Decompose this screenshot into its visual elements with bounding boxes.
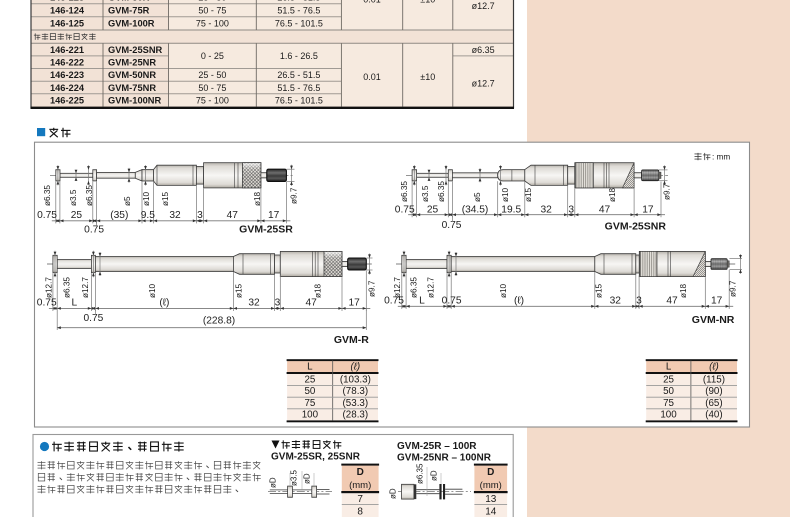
svg-text:14: 14 (485, 507, 497, 517)
svg-text:9.5: 9.5 (141, 210, 155, 221)
svg-text:ø12.7: ø12.7 (472, 1, 495, 11)
svg-text:17: 17 (349, 298, 361, 309)
svg-text:ø12.7: ø12.7 (45, 277, 54, 298)
svg-text:47: 47 (306, 298, 318, 309)
svg-text:ø6.35: ø6.35 (43, 185, 52, 206)
svg-text:ø6.35: ø6.35 (472, 45, 495, 55)
svg-text:(228.8): (228.8) (203, 315, 235, 326)
svg-text:ø5: ø5 (473, 192, 482, 202)
svg-text:13: 13 (485, 494, 497, 505)
svg-text:GVM-25R – 100R: GVM-25R – 100R (397, 441, 477, 452)
svg-text:0.75: 0.75 (83, 313, 103, 324)
svg-text:GVM-25SNR: GVM-25SNR (605, 220, 667, 232)
svg-text:146-222: 146-222 (50, 57, 84, 67)
svg-text:øD: øD (269, 477, 278, 488)
svg-text:(65): (65) (705, 398, 722, 409)
svg-text:(28.3): (28.3) (343, 409, 369, 420)
svg-text:(78.3): (78.3) (343, 386, 369, 397)
svg-text:3: 3 (275, 298, 281, 309)
svg-text:0.75: 0.75 (37, 298, 57, 309)
svg-text:D: D (487, 467, 494, 478)
svg-text:100: 100 (660, 409, 677, 420)
svg-text:25: 25 (304, 375, 315, 386)
svg-text:ø6.35: ø6.35 (400, 181, 409, 202)
svg-text:17: 17 (711, 296, 723, 307)
svg-text:25: 25 (427, 205, 439, 216)
svg-text:26.5 - 51.5: 26.5 - 51.5 (277, 0, 320, 3)
svg-text:(ℓ): (ℓ) (514, 296, 524, 307)
svg-text:51.5 - 76.5: 51.5 - 76.5 (277, 6, 320, 16)
svg-text:50: 50 (304, 386, 315, 397)
svg-text:0.75: 0.75 (384, 296, 404, 307)
svg-text:ø9.7: ø9.7 (368, 280, 377, 297)
svg-text:ø3.5: ø3.5 (421, 185, 430, 202)
svg-text:0.75: 0.75 (37, 210, 57, 221)
svg-text:(115): (115) (703, 375, 725, 386)
svg-text:25 - 50: 25 - 50 (198, 70, 226, 80)
svg-text:ø9.7: ø9.7 (290, 187, 299, 204)
svg-text:17: 17 (268, 210, 280, 221)
svg-text:51.5 - 76.5: 51.5 - 76.5 (277, 83, 320, 93)
svg-text:ø3.5: ø3.5 (69, 189, 78, 206)
svg-text:32: 32 (610, 296, 622, 307)
svg-text:146-224: 146-224 (50, 83, 85, 93)
svg-text:76.5 - 101.5: 76.5 - 101.5 (275, 95, 323, 105)
svg-text:ø10: ø10 (142, 191, 151, 206)
svg-text:øD: øD (429, 470, 438, 481)
svg-text:3: 3 (197, 210, 203, 221)
svg-text:ø12.7: ø12.7 (427, 277, 436, 298)
svg-text:(ℓ): (ℓ) (350, 362, 360, 373)
svg-text:ø10: ø10 (499, 283, 508, 298)
svg-text:GVM-25SR, 25SNR: GVM-25SR, 25SNR (271, 452, 361, 463)
svg-text:47: 47 (666, 296, 678, 307)
svg-text:: mm: : mm (712, 153, 730, 162)
svg-text:ø12.7: ø12.7 (472, 79, 495, 89)
svg-text:ø15: ø15 (235, 283, 244, 298)
svg-text:47: 47 (599, 205, 611, 216)
svg-text:GVM-75R: GVM-75R (108, 6, 150, 16)
svg-text:øD: øD (389, 488, 398, 499)
svg-text:146-225: 146-225 (50, 95, 84, 105)
svg-text:50: 50 (663, 386, 674, 397)
svg-text:D: D (357, 467, 364, 478)
svg-text:(ℓ): (ℓ) (159, 298, 169, 309)
svg-text:(40): (40) (705, 409, 722, 420)
svg-text:0.75: 0.75 (442, 220, 462, 231)
svg-text:(90): (90) (705, 386, 722, 397)
svg-text:25: 25 (71, 210, 83, 221)
svg-text:8: 8 (357, 507, 363, 517)
svg-text:32: 32 (169, 210, 181, 221)
svg-text:GVM-25NR: GVM-25NR (108, 57, 156, 67)
svg-text:ø18: ø18 (608, 187, 617, 202)
svg-text:ø15: ø15 (161, 191, 170, 206)
svg-text:ø18: ø18 (679, 283, 688, 298)
svg-text:0.01: 0.01 (363, 72, 381, 82)
svg-text:100: 100 (302, 409, 319, 420)
svg-text:L: L (666, 362, 672, 373)
svg-text:(mm): (mm) (349, 480, 371, 491)
svg-text:146-125: 146-125 (50, 19, 84, 29)
svg-text:(34.5): (34.5) (462, 205, 489, 216)
svg-text:47: 47 (227, 210, 239, 221)
svg-text:GVM-50R: GVM-50R (108, 0, 150, 3)
svg-text:ø12.7: ø12.7 (81, 277, 90, 298)
svg-text:3: 3 (636, 296, 642, 307)
svg-text:ø5: ø5 (123, 196, 132, 206)
svg-text:GVM-25SNR: GVM-25SNR (108, 45, 163, 55)
svg-text:L: L (307, 362, 313, 373)
svg-text:19.5: 19.5 (501, 205, 521, 216)
svg-text:L: L (419, 296, 425, 307)
svg-text:32: 32 (541, 205, 553, 216)
svg-text:GVM-NR: GVM-NR (692, 314, 735, 326)
svg-text:146-221: 146-221 (50, 45, 84, 55)
svg-text:±10: ±10 (420, 72, 435, 82)
svg-text:75 - 100: 75 - 100 (196, 19, 229, 29)
svg-text:17: 17 (642, 205, 654, 216)
svg-text:(35): (35) (110, 210, 128, 221)
svg-text:(mm): (mm) (480, 480, 502, 491)
svg-text:ø15: ø15 (595, 283, 604, 298)
svg-text:1.6 - 26.5: 1.6 - 26.5 (280, 51, 318, 61)
svg-text:GVM-100NR: GVM-100NR (108, 95, 161, 105)
svg-text:ø9.7: ø9.7 (729, 280, 738, 297)
svg-text:(ℓ): (ℓ) (709, 362, 719, 373)
svg-text:GVM-50NR: GVM-50NR (108, 70, 156, 80)
svg-text:GVM-R: GVM-R (334, 334, 369, 346)
svg-text:ø9.7: ø9.7 (663, 183, 672, 200)
svg-text:ø6.35: ø6.35 (415, 463, 424, 484)
svg-text:ø18: ø18 (314, 283, 323, 298)
svg-text:0.01: 0.01 (363, 0, 381, 5)
svg-text:0.75: 0.75 (442, 296, 462, 307)
svg-text:GVM-100R: GVM-100R (108, 19, 155, 29)
svg-text:75 - 100: 75 - 100 (196, 95, 229, 105)
svg-text:0.75: 0.75 (84, 225, 104, 236)
svg-text:25: 25 (663, 375, 674, 386)
svg-text:L: L (71, 298, 77, 309)
svg-text:øD: øD (303, 473, 312, 484)
svg-text:146-123: 146-123 (50, 0, 84, 3)
svg-text:32: 32 (248, 298, 260, 309)
svg-text:76.5 - 101.5: 76.5 - 101.5 (275, 19, 323, 29)
svg-text:50 - 75: 50 - 75 (198, 6, 226, 16)
svg-text:26.5 - 51.5: 26.5 - 51.5 (277, 70, 320, 80)
svg-text:ø6.35: ø6.35 (63, 277, 72, 298)
svg-text:GVM-75NR: GVM-75NR (108, 83, 156, 93)
svg-text:75: 75 (304, 398, 315, 409)
svg-text:ø3.5: ø3.5 (290, 469, 299, 486)
svg-text:0 - 25: 0 - 25 (201, 51, 224, 61)
svg-text:(103.3): (103.3) (340, 375, 371, 386)
svg-text:ø15: ø15 (524, 187, 533, 202)
svg-text:±10: ±10 (420, 0, 435, 5)
svg-text:75: 75 (663, 398, 674, 409)
svg-text:GVM-25SR: GVM-25SR (239, 224, 293, 236)
svg-text:25 - 50: 25 - 50 (198, 0, 226, 3)
svg-text:GVM-25NR – 100NR: GVM-25NR – 100NR (397, 452, 492, 463)
svg-text:ø10: ø10 (501, 187, 510, 202)
svg-text:ø10: ø10 (148, 283, 157, 298)
svg-text:(53.3): (53.3) (343, 398, 369, 409)
svg-text:0.75: 0.75 (395, 205, 415, 216)
svg-text:50 - 75: 50 - 75 (198, 83, 226, 93)
svg-text:ø6.35: ø6.35 (437, 181, 446, 202)
svg-text:7: 7 (357, 494, 363, 505)
svg-text:3: 3 (568, 205, 574, 216)
svg-text:146-223: 146-223 (50, 70, 84, 80)
svg-text:ø6.35: ø6.35 (410, 277, 419, 298)
svg-text:146-124: 146-124 (50, 6, 85, 16)
